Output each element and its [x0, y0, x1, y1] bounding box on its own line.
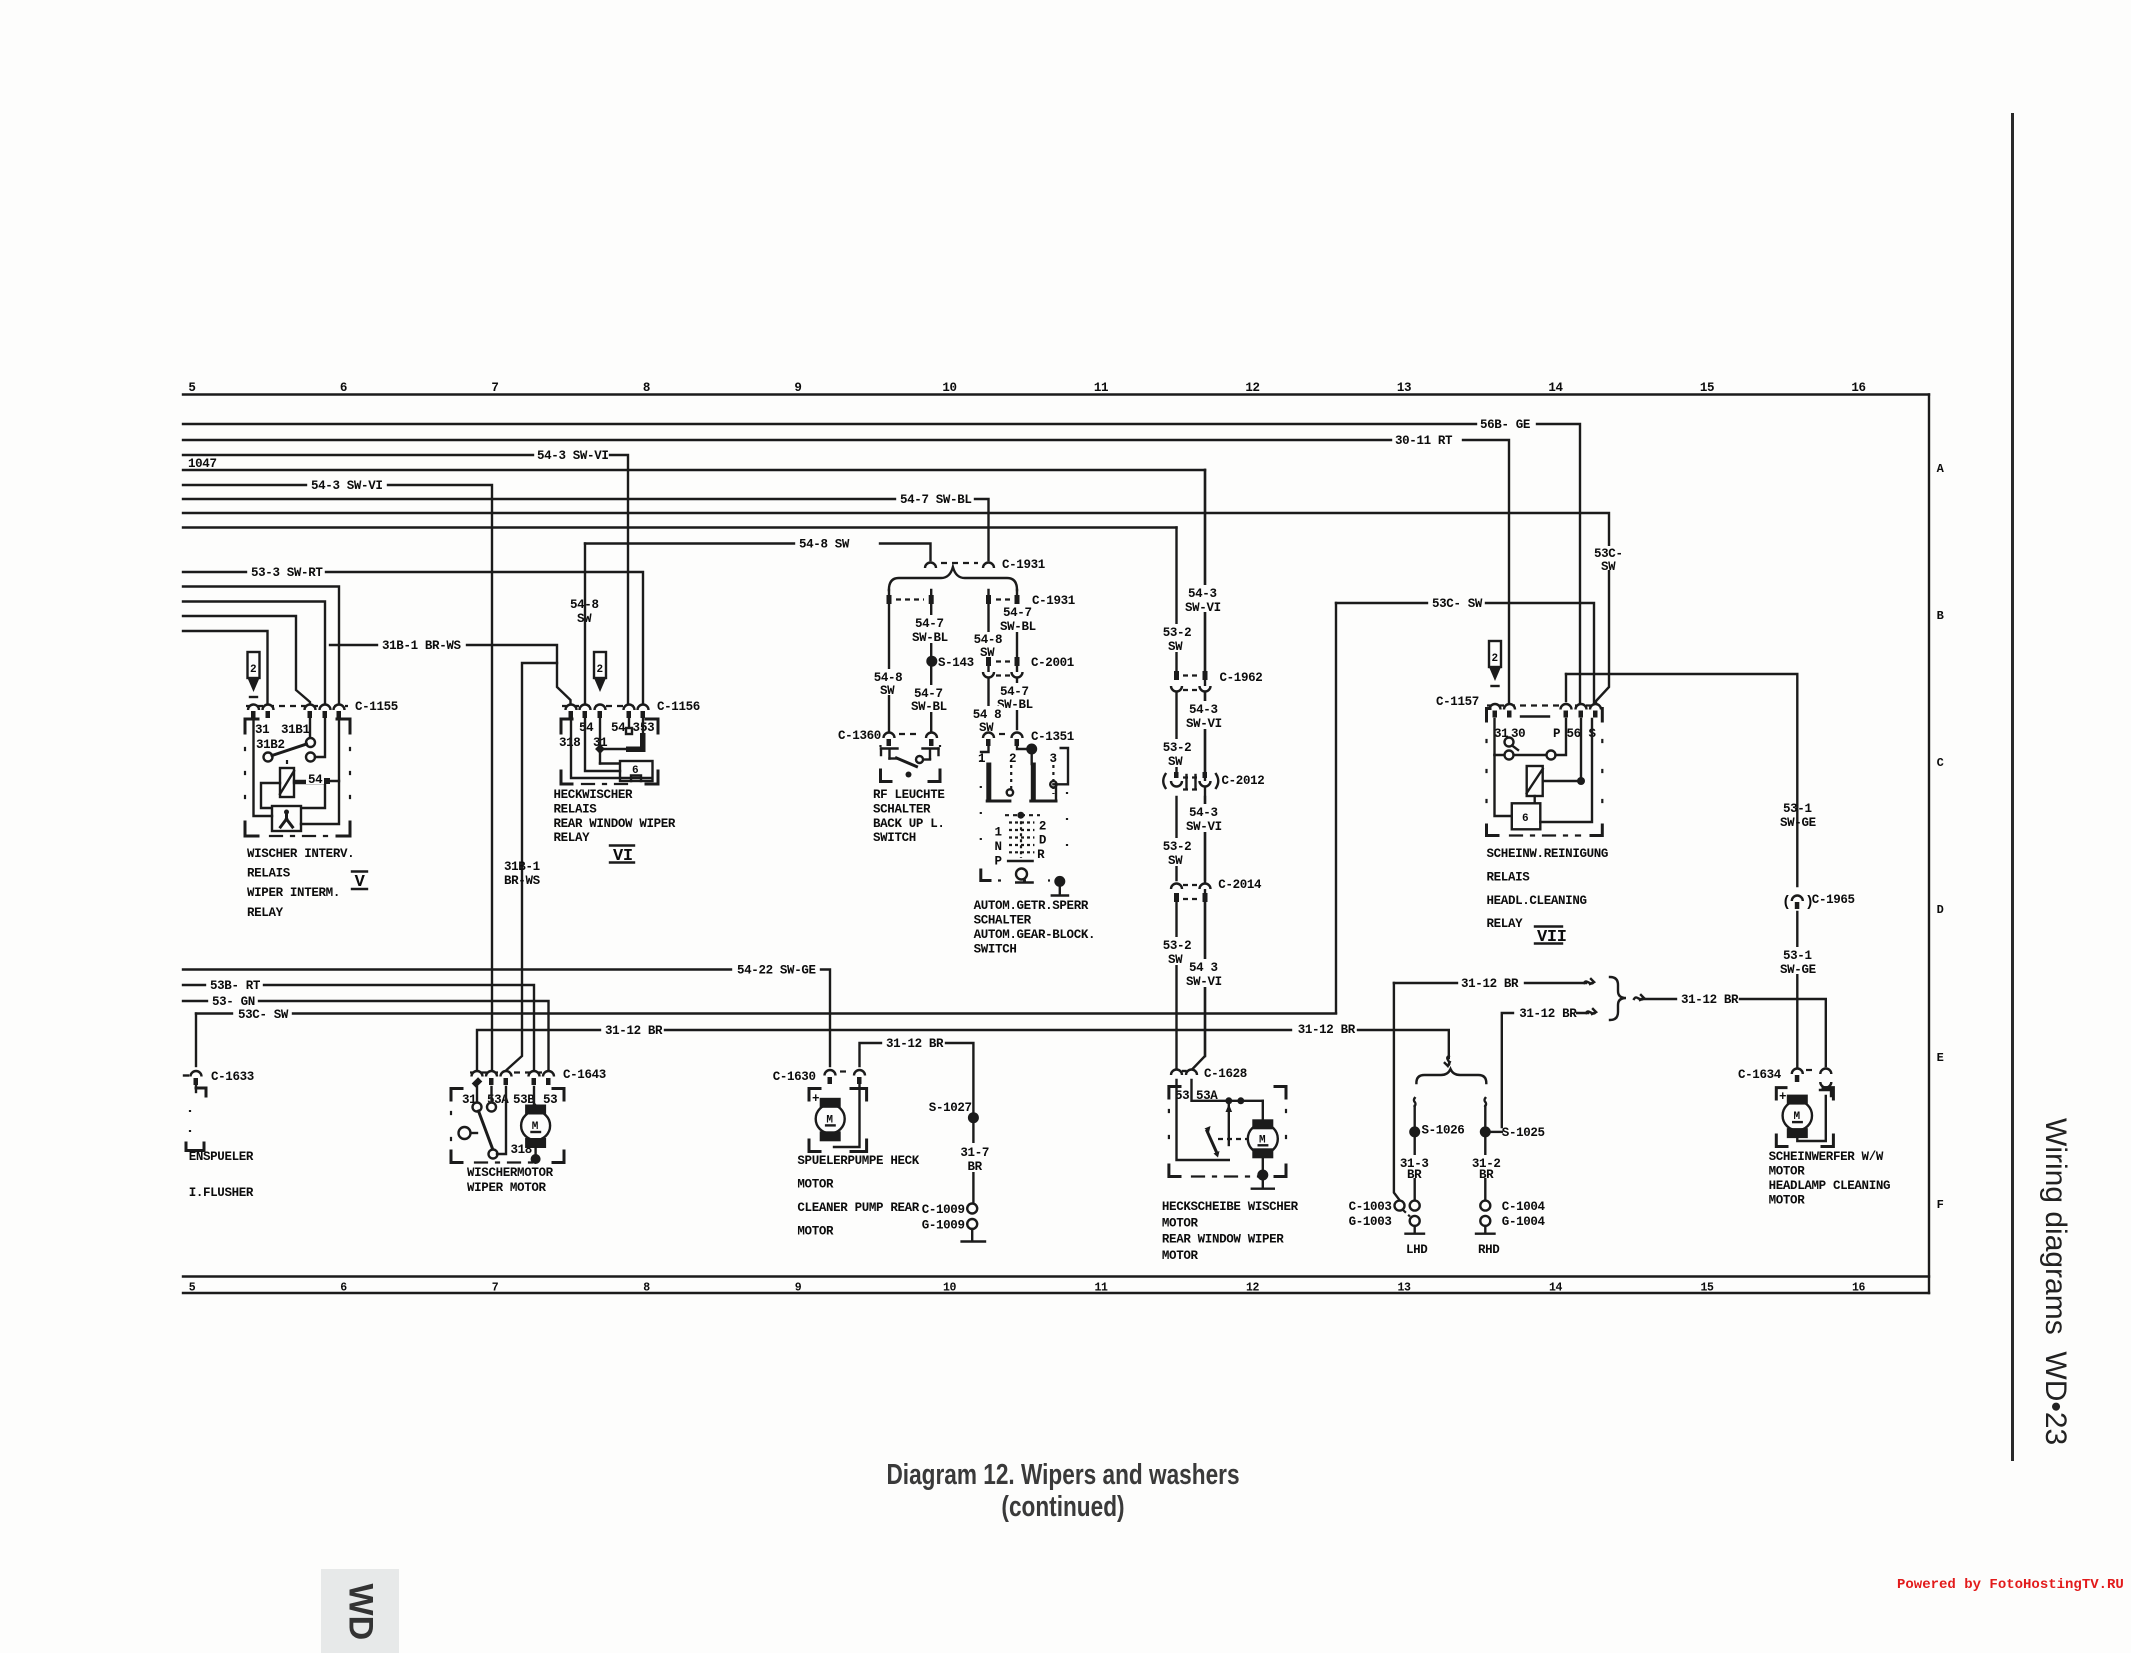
svg-text:(: (	[1782, 894, 1791, 911]
svg-text:54: 54	[308, 773, 323, 787]
svg-text:RHD: RHD	[1478, 1243, 1500, 1257]
svg-text:2: 2	[250, 664, 256, 676]
svg-text:SW-VI: SW-VI	[1186, 820, 1222, 834]
svg-text:SW: SW	[1168, 755, 1183, 769]
svg-text:C-2014: C-2014	[1218, 878, 1262, 892]
svg-text:AUTOM.GETR.SPERR: AUTOM.GETR.SPERR	[974, 899, 1089, 913]
svg-text:11: 11	[1094, 381, 1108, 395]
svg-text:+: +	[1779, 1090, 1786, 1104]
svg-text:SW-BL: SW-BL	[911, 700, 947, 714]
svg-text:I.FLUSHER: I.FLUSHER	[189, 1186, 254, 1200]
svg-text:54-3: 54-3	[1189, 703, 1218, 717]
svg-text:E: E	[1937, 1051, 1944, 1065]
svg-text:G-1009: G-1009	[922, 1219, 965, 1233]
svg-text:C-2012: C-2012	[1222, 774, 1265, 788]
svg-text:53-1: 53-1	[1783, 802, 1812, 816]
svg-text:30-11 RT: 30-11 RT	[1395, 434, 1453, 448]
svg-text:R: R	[1037, 848, 1045, 862]
svg-text:54-3 SW-VI: 54-3 SW-VI	[537, 449, 609, 463]
svg-text:P: P	[1553, 727, 1560, 741]
svg-text:15: 15	[1700, 1282, 1714, 1295]
svg-text:31-12 BR: 31-12 BR	[1461, 977, 1519, 991]
svg-text:54 3: 54 3	[1189, 961, 1218, 975]
svg-text:SW: SW	[1168, 854, 1183, 868]
svg-text:7: 7	[492, 1282, 499, 1295]
svg-text:13: 13	[1397, 1282, 1411, 1295]
svg-text:56: 56	[1567, 727, 1581, 741]
svg-text:16: 16	[1851, 381, 1865, 395]
svg-text:16: 16	[1852, 1282, 1866, 1295]
svg-text:C-1633: C-1633	[211, 1070, 254, 1084]
svg-text:C-1643: C-1643	[563, 1068, 606, 1082]
svg-text:54-3 SW-VI: 54-3 SW-VI	[311, 479, 383, 493]
svg-text:C-1360: C-1360	[838, 729, 881, 743]
svg-text:D: D	[1937, 903, 1944, 917]
svg-text:C-1004: C-1004	[1502, 1200, 1546, 1214]
svg-text:31-12 BR: 31-12 BR	[1519, 1007, 1577, 1021]
svg-text:SWITCH: SWITCH	[974, 943, 1017, 957]
svg-text:REAR WINDOW WIPER: REAR WINDOW WIPER	[1162, 1233, 1284, 1247]
svg-text:2: 2	[1039, 820, 1046, 834]
svg-text:54 8: 54 8	[973, 708, 1002, 722]
svg-text:RELAY: RELAY	[247, 906, 284, 920]
svg-text:31B1: 31B1	[281, 723, 310, 737]
svg-text:HECKSCHEIBE WISCHER: HECKSCHEIBE WISCHER	[1162, 1200, 1299, 1214]
svg-text:3: 3	[1050, 752, 1057, 766]
svg-text:53- GN: 53- GN	[212, 995, 255, 1009]
svg-text:31-12 BR: 31-12 BR	[886, 1037, 944, 1051]
svg-text:SWITCH: SWITCH	[873, 831, 916, 845]
svg-text:54-3: 54-3	[1189, 806, 1218, 820]
svg-text:2: 2	[1492, 653, 1498, 665]
svg-text:53C-: 53C-	[1594, 547, 1623, 561]
svg-text:BR-WS: BR-WS	[504, 874, 541, 888]
svg-text:6: 6	[340, 1282, 347, 1295]
svg-text:SPUELERPUMPE HECK: SPUELERPUMPE HECK	[797, 1154, 919, 1168]
svg-text:318: 318	[559, 736, 580, 750]
svg-text:54-8: 54-8	[874, 671, 903, 685]
svg-text:54-22 SW-GE: 54-22 SW-GE	[737, 964, 816, 978]
svg-text:AUTOM.GEAR-BLOCK.: AUTOM.GEAR-BLOCK.	[974, 928, 1096, 942]
svg-text:P: P	[995, 855, 1002, 869]
svg-text:C-1931: C-1931	[1032, 594, 1075, 608]
svg-text:WISCHERMOTOR: WISCHERMOTOR	[467, 1166, 554, 1180]
svg-text:2: 2	[597, 664, 603, 676]
svg-text:53-2: 53-2	[1163, 840, 1192, 854]
svg-text:SW-GE: SW-GE	[1780, 816, 1816, 830]
svg-text:SW: SW	[1168, 953, 1183, 967]
svg-text:53-2: 53-2	[1163, 741, 1192, 755]
svg-text:ENSPUELER: ENSPUELER	[189, 1150, 254, 1164]
svg-text:WIPER MOTOR: WIPER MOTOR	[467, 1181, 547, 1195]
svg-text:31-12 BR: 31-12 BR	[1681, 993, 1739, 1007]
svg-text:31: 31	[255, 723, 269, 737]
svg-text:F: F	[1937, 1198, 1944, 1212]
svg-text:C-1931: C-1931	[1002, 558, 1045, 572]
svg-text:D: D	[1039, 834, 1047, 848]
svg-text:BR: BR	[1407, 1168, 1422, 1182]
svg-text:SCHEINWERFER W/W: SCHEINWERFER W/W	[1769, 1150, 1884, 1164]
svg-text:1: 1	[978, 752, 985, 766]
svg-text:13: 13	[1397, 381, 1411, 395]
svg-text:S-143: S-143	[938, 656, 974, 670]
svg-text:SW-BL: SW-BL	[1000, 620, 1036, 634]
svg-text:53C- SW: 53C- SW	[1432, 597, 1483, 611]
svg-text:31B2: 31B2	[256, 738, 285, 752]
svg-text:54-7: 54-7	[914, 687, 943, 701]
svg-text:53-2: 53-2	[1163, 939, 1192, 953]
svg-text:HECKWISCHER: HECKWISCHER	[554, 788, 634, 802]
svg-text:MOTOR: MOTOR	[1769, 1165, 1806, 1179]
svg-text:53C- SW: 53C- SW	[238, 1008, 289, 1022]
svg-text:SW: SW	[1601, 560, 1616, 574]
svg-text:54-8 SW: 54-8 SW	[799, 538, 850, 552]
svg-text:14: 14	[1549, 1282, 1563, 1295]
svg-text:RELAIS: RELAIS	[1487, 870, 1531, 884]
svg-text:54-3: 54-3	[1188, 587, 1217, 601]
svg-text:C-2001: C-2001	[1031, 656, 1074, 670]
svg-text:6: 6	[340, 381, 347, 395]
svg-text:MOTOR: MOTOR	[1769, 1194, 1806, 1208]
svg-text:SW-GE: SW-GE	[1780, 963, 1816, 977]
svg-text:53-1: 53-1	[1783, 949, 1812, 963]
svg-text:HEADL.CLEANING: HEADL.CLEANING	[1487, 894, 1587, 908]
svg-text:54: 54	[579, 721, 594, 735]
svg-text:10: 10	[943, 1282, 957, 1295]
svg-text:WIPER INTERM.: WIPER INTERM.	[247, 886, 340, 900]
svg-text:SW: SW	[1168, 640, 1183, 654]
svg-text:C-1155: C-1155	[355, 700, 398, 714]
svg-text:SW-VI: SW-VI	[1186, 717, 1222, 731]
svg-text:S-1027: S-1027	[929, 1101, 972, 1115]
svg-text:+: +	[812, 1092, 819, 1106]
svg-text:54-7: 54-7	[915, 617, 944, 631]
svg-text:RELAIS: RELAIS	[247, 867, 291, 881]
svg-text:A: A	[1937, 462, 1945, 476]
svg-text:RELAIS: RELAIS	[554, 802, 598, 816]
svg-text:G-1004: G-1004	[1502, 1215, 1546, 1229]
svg-text:C-1634: C-1634	[1738, 1068, 1782, 1082]
svg-text:G-1003: G-1003	[1349, 1215, 1392, 1229]
svg-text:REAR WINDOW WIPER: REAR WINDOW WIPER	[554, 817, 676, 831]
svg-text:C-1351: C-1351	[1031, 730, 1074, 744]
svg-text:C-1009: C-1009	[922, 1203, 965, 1217]
svg-text:S-1025: S-1025	[1502, 1126, 1545, 1140]
svg-text:CLEANER PUMP REAR: CLEANER PUMP REAR	[797, 1201, 919, 1215]
svg-text:6: 6	[1522, 813, 1528, 825]
svg-text:9: 9	[795, 1282, 802, 1295]
svg-text:MOTOR: MOTOR	[797, 1225, 834, 1239]
svg-text:31-7: 31-7	[960, 1146, 989, 1160]
svg-text:SCHALTER: SCHALTER	[873, 802, 931, 816]
svg-text:N: N	[995, 840, 1002, 854]
svg-text:HEADLAMP CLEANING: HEADLAMP CLEANING	[1769, 1179, 1891, 1193]
svg-text:53-2: 53-2	[1163, 626, 1192, 640]
svg-text:54-7: 54-7	[1000, 685, 1029, 699]
svg-text:1: 1	[995, 826, 1002, 840]
svg-text:SCHALTER: SCHALTER	[974, 914, 1032, 928]
svg-text:53-3 SW-RT: 53-3 SW-RT	[251, 566, 323, 580]
svg-text:MOTOR: MOTOR	[1162, 1216, 1199, 1230]
svg-text:C-1962: C-1962	[1220, 671, 1263, 685]
svg-text:15: 15	[1700, 381, 1714, 395]
svg-text:B: B	[1937, 609, 1944, 623]
svg-text:SW-VI: SW-VI	[1186, 975, 1222, 989]
svg-text:RELAY: RELAY	[554, 831, 591, 845]
svg-text:5: 5	[189, 1282, 196, 1295]
svg-text:SCHEINW.REINIGUNG: SCHEINW.REINIGUNG	[1487, 847, 1609, 861]
svg-text:7: 7	[491, 381, 498, 395]
svg-text:12: 12	[1245, 381, 1259, 395]
svg-text:8: 8	[643, 381, 650, 395]
svg-text:31-12 BR: 31-12 BR	[1298, 1023, 1356, 1037]
svg-text:S-1026: S-1026	[1422, 1124, 1465, 1138]
svg-text:MOTOR: MOTOR	[1162, 1249, 1199, 1263]
svg-text:2: 2	[1009, 752, 1016, 766]
svg-text:SW-BL: SW-BL	[912, 631, 948, 645]
svg-text:C-1157: C-1157	[1436, 695, 1479, 709]
svg-text:RELAY: RELAY	[1487, 917, 1524, 931]
svg-text:C-1630: C-1630	[773, 1070, 816, 1084]
svg-text:BR: BR	[968, 1160, 983, 1174]
svg-text:C-1628: C-1628	[1204, 1067, 1247, 1081]
svg-text:LHD: LHD	[1406, 1243, 1428, 1257]
svg-text:C: C	[1937, 756, 1944, 770]
svg-text:12: 12	[1246, 1282, 1260, 1295]
svg-text:56B- GE: 56B- GE	[1480, 418, 1530, 432]
svg-text:10: 10	[942, 381, 956, 395]
svg-text:BACK UP L.: BACK UP L.	[873, 817, 945, 831]
svg-text:31-12 BR: 31-12 BR	[605, 1024, 663, 1038]
svg-text:C-1003: C-1003	[1349, 1200, 1392, 1214]
svg-text:SW: SW	[880, 684, 895, 698]
svg-text:SW-VI: SW-VI	[1185, 601, 1221, 615]
svg-text:54-7 SW-BL: 54-7 SW-BL	[900, 493, 972, 507]
svg-text:31B-1: 31B-1	[504, 860, 540, 874]
svg-text:53B- RT: 53B- RT	[210, 979, 261, 993]
svg-text:54-8: 54-8	[974, 633, 1003, 647]
svg-text:54-7: 54-7	[1003, 606, 1032, 620]
svg-text:RF LEUCHTE: RF LEUCHTE	[873, 788, 945, 802]
svg-text:9: 9	[794, 381, 801, 395]
svg-text:C-1156: C-1156	[657, 700, 700, 714]
svg-text:31B-1 BR-WS: 31B-1 BR-WS	[382, 639, 462, 653]
svg-text:1047: 1047	[188, 457, 217, 471]
svg-text:WISCHER INTERV.: WISCHER INTERV.	[247, 847, 354, 861]
svg-text:MOTOR: MOTOR	[797, 1178, 834, 1192]
svg-text:5: 5	[188, 381, 195, 395]
svg-text:8: 8	[643, 1282, 650, 1295]
svg-text:14: 14	[1548, 381, 1563, 395]
svg-text:C-1965: C-1965	[1812, 893, 1855, 907]
svg-text:11: 11	[1094, 1282, 1108, 1295]
svg-text:BR: BR	[1479, 1168, 1494, 1182]
